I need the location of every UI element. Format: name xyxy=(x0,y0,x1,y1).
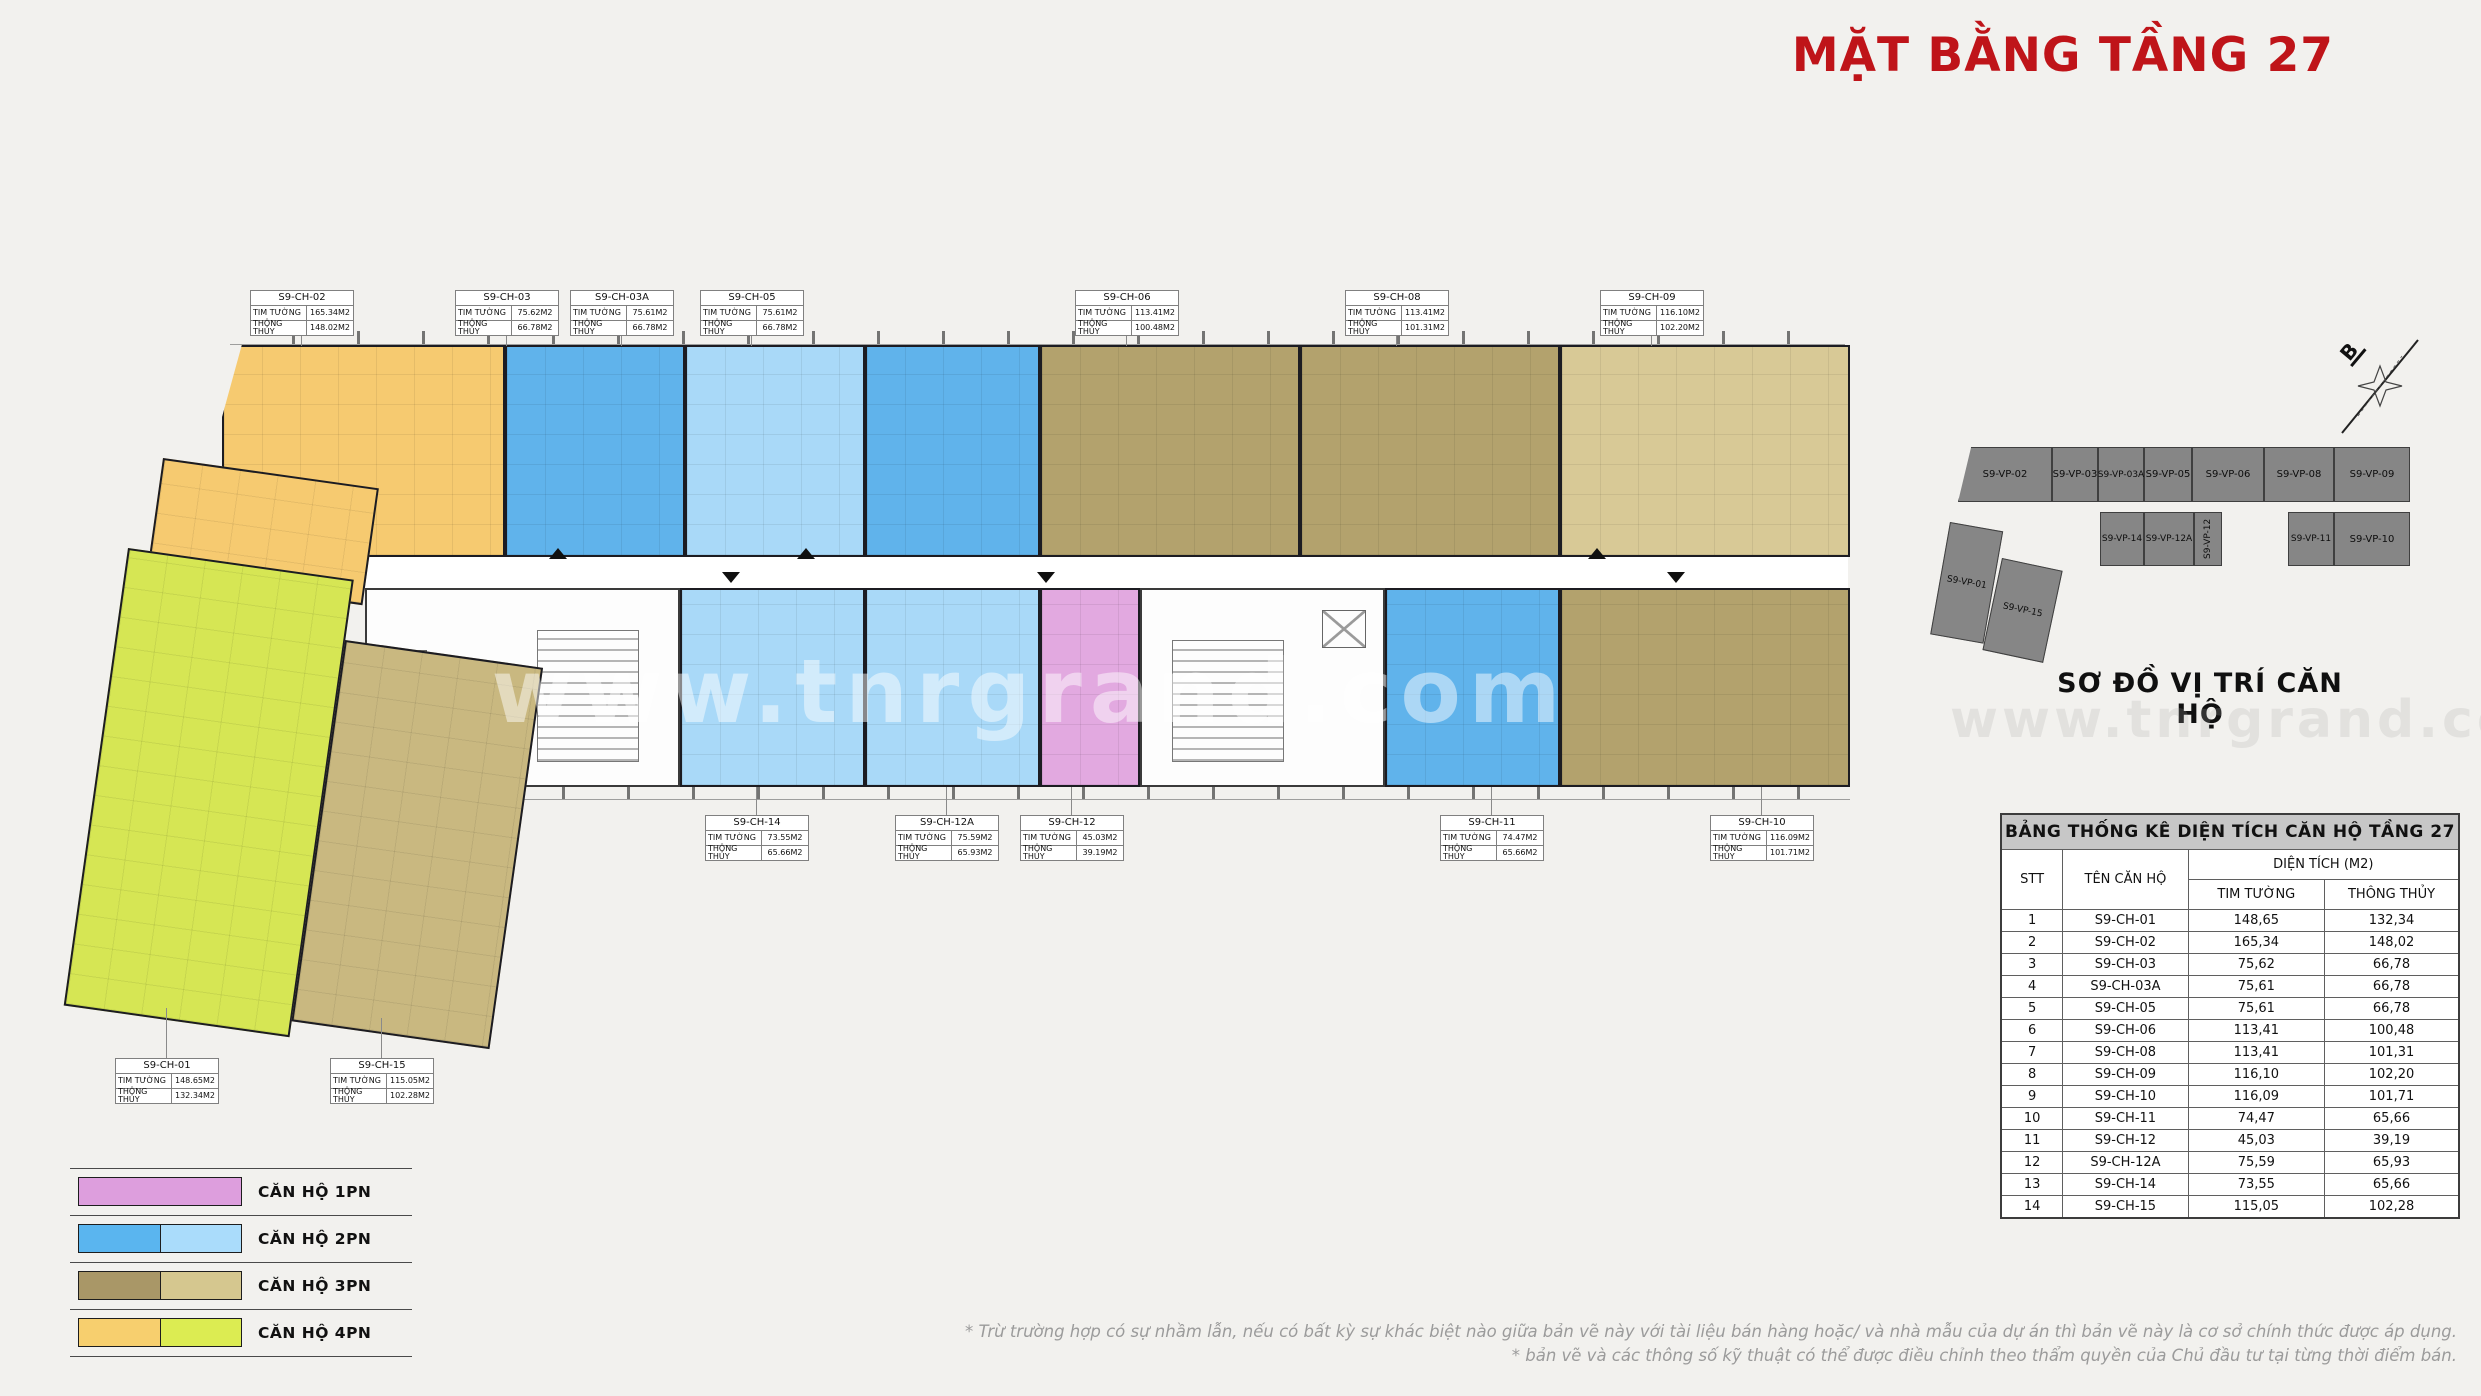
table-row: 5S9-CH-0575,6166,78 xyxy=(2001,998,2459,1020)
legend-label: CĂN HỘ 3PN xyxy=(258,1263,371,1309)
unit-s9-ch-09 xyxy=(1560,345,1850,557)
unit-label-s9-ch-06: S9-CH-06 TIM TƯỜNG113.41M2 THÔNG THỦY100… xyxy=(1075,290,1179,336)
unit-label-s9-ch-03a: S9-CH-03A TIM TƯỜNG75.61M2 THÔNG THỦY66.… xyxy=(570,290,674,336)
label-leader xyxy=(1396,336,1397,346)
unit-label-s9-ch-08: S9-CH-08 TIM TƯỜNG113.41M2 THÔNG THỦY101… xyxy=(1345,290,1449,336)
legend-item-1pn: CĂN HỘ 1PN xyxy=(70,1168,412,1215)
minimap-unit-s9-vp-11: S9-VP-11 xyxy=(2288,512,2334,566)
table-row: 4S9-CH-03A75,6166,78 xyxy=(2001,976,2459,998)
legend-swatch-3pn xyxy=(78,1271,242,1300)
entrance-arrow xyxy=(549,548,567,559)
elevator-shaft xyxy=(1322,610,1366,648)
table-row: 12S9-CH-12A75,5965,93 xyxy=(2001,1152,2459,1174)
footnotes: * Trừ trường hợp có sự nhầm lẫn, nếu có … xyxy=(965,1320,2457,1368)
unit-label-s9-ch-11: S9-CH-11 TIM TƯỜNG74.47M2 THÔNG THỦY65.6… xyxy=(1440,815,1544,861)
unit-label-s9-ch-12: S9-CH-12 TIM TƯỜNG45.03M2 THÔNG THỦY39.1… xyxy=(1020,815,1124,861)
label-leader xyxy=(946,787,947,815)
legend-label: CĂN HỘ 4PN xyxy=(258,1310,371,1356)
unit-s9-ch-11 xyxy=(1385,588,1560,787)
col-header-dien-tich: DIỆN TÍCH (M2) xyxy=(2188,850,2459,880)
unit-label-s9-ch-15: S9-CH-15 TIM TƯỜNG115.05M2 THÔNG THỦY102… xyxy=(330,1058,434,1104)
unit-s9-ch-12 xyxy=(1040,588,1140,787)
legend-item-2pn: CĂN HỘ 2PN xyxy=(70,1215,412,1262)
minimap-unit-s9-vp-03a: S9-VP-03A xyxy=(2098,447,2144,502)
unit-label-s9-ch-09: S9-CH-09 TIM TƯỜNG116.10M2 THÔNG THỦY102… xyxy=(1600,290,1704,336)
entrance-arrow xyxy=(722,572,740,583)
legend: CĂN HỘ 1PN CĂN HỘ 2PN CĂN HỘ 3PN CĂN HỘ … xyxy=(70,1168,412,1357)
table-row: 14S9-CH-15115,05102,28 xyxy=(2001,1196,2459,1219)
legend-swatch-2pn xyxy=(78,1224,242,1253)
unit-s9-ch-06 xyxy=(1040,345,1300,557)
unit-s9-ch-12a xyxy=(865,588,1040,787)
unit-s9-ch-03a xyxy=(685,345,865,557)
unit-label-s9-ch-12a: S9-CH-12A TIM TƯỜNG75.59M2 THÔNG THỦY65.… xyxy=(895,815,999,861)
label-leader xyxy=(751,336,752,346)
unit-s9-ch-03 xyxy=(505,345,685,557)
table-row: 11S9-CH-1245,0339,19 xyxy=(2001,1130,2459,1152)
corridor xyxy=(224,557,1848,588)
table-row: 10S9-CH-1174,4765,66 xyxy=(2001,1108,2459,1130)
label-leader xyxy=(621,336,622,346)
col-header-stt: STT xyxy=(2001,850,2063,910)
footnote-line: * Trừ trường hợp có sự nhầm lẫn, nếu có … xyxy=(965,1320,2457,1344)
unit-label-s9-ch-01: S9-CH-01 TIM TƯỜNG148.65M2 THÔNG THỦY132… xyxy=(115,1058,219,1104)
label-leader xyxy=(506,336,507,346)
label-leader xyxy=(1071,787,1072,815)
unit-label-s9-ch-02: S9-CH-02 TIM TƯỜNG165.34M2 THÔNG THỦY148… xyxy=(250,290,354,336)
col-header-tim-tuong: TIM TƯỜNG xyxy=(2188,880,2324,910)
unit-label-s9-ch-10: S9-CH-10 TIM TƯỜNG116.09M2 THÔNG THỦY101… xyxy=(1710,815,1814,861)
minimap-caption: SƠ ĐỒ VỊ TRÍ CĂN HỘ xyxy=(2040,668,2360,730)
entrance-arrow xyxy=(797,548,815,559)
table-row: 8S9-CH-09116,10102,20 xyxy=(2001,1064,2459,1086)
legend-item-3pn: CĂN HỘ 3PN xyxy=(70,1262,412,1309)
minimap-unit-s9-vp-05: S9-VP-05 xyxy=(2144,447,2192,502)
unit-s9-ch-10 xyxy=(1560,588,1850,787)
unit-label-s9-ch-03: S9-CH-03 TIM TƯỜNG75.62M2 THÔNG THỦY66.7… xyxy=(455,290,559,336)
minimap-unit-s9-vp-10: S9-VP-10 xyxy=(2334,512,2410,566)
building-core-2 xyxy=(1140,588,1385,787)
legend-label: CĂN HỘ 2PN xyxy=(258,1216,371,1262)
table-row: 6S9-CH-06113,41100,48 xyxy=(2001,1020,2459,1042)
label-leader xyxy=(1491,787,1492,815)
label-leader xyxy=(1651,336,1652,346)
unit-s9-ch-14 xyxy=(680,588,865,787)
minimap-unit-s9-vp-06: S9-VP-06 xyxy=(2192,447,2264,502)
table-row: 3S9-CH-0375,6266,78 xyxy=(2001,954,2459,976)
col-header-thong-thuy: THÔNG THỦY xyxy=(2325,880,2459,910)
label-leader xyxy=(301,336,302,346)
entrance-arrow xyxy=(1588,548,1606,559)
minimap-unit-s9-vp-08: S9-VP-08 xyxy=(2264,447,2334,502)
table-row: 7S9-CH-08113,41101,31 xyxy=(2001,1042,2459,1064)
floorplan-page: MẶT BẰNG TẦNG 27 www.tnrgrand.com www.tn… xyxy=(0,0,2481,1396)
staircase xyxy=(537,630,639,762)
table-row: 13S9-CH-1473,5565,66 xyxy=(2001,1174,2459,1196)
minimap-unit-s9-vp-14: S9-VP-14 xyxy=(2100,512,2144,566)
balcony-strip-bottom xyxy=(370,786,1850,800)
unit-label-s9-ch-14: S9-CH-14 TIM TƯỜNG73.55M2 THÔNG THỦY65.6… xyxy=(705,815,809,861)
label-leader xyxy=(381,1018,382,1058)
unit-label-s9-ch-05: S9-CH-05 TIM TƯỜNG75.61M2 THÔNG THỦY66.7… xyxy=(700,290,804,336)
table-row: 9S9-CH-10116,09101,71 xyxy=(2001,1086,2459,1108)
label-leader xyxy=(1761,787,1762,815)
page-title: MẶT BẰNG TẦNG 27 xyxy=(1792,28,2334,83)
area-statistics-table: BẢNG THỐNG KÊ DIỆN TÍCH CĂN HỘ TẦNG 27 S… xyxy=(2000,813,2460,1219)
entrance-arrow xyxy=(1667,572,1685,583)
minimap-unit-s9-vp-09: S9-VP-09 xyxy=(2334,447,2410,502)
staircase xyxy=(1172,640,1284,762)
unit-s9-ch-05 xyxy=(865,345,1040,557)
legend-swatch-1pn xyxy=(78,1177,242,1206)
minimap-unit-s9-vp-12: S9-VP-12 xyxy=(2194,512,2222,566)
table-title: BẢNG THỐNG KÊ DIỆN TÍCH CĂN HỘ TẦNG 27 xyxy=(2001,814,2459,850)
minimap-unit-s9-vp-03: S9-VP-03 xyxy=(2052,447,2098,502)
minimap-unit-s9-vp-02: S9-VP-02 xyxy=(1958,447,2052,502)
legend-label: CĂN HỘ 1PN xyxy=(258,1169,371,1215)
footnote-line: * bản vẽ và các thông số kỹ thuật có thể… xyxy=(965,1344,2457,1368)
entrance-arrow xyxy=(1037,572,1055,583)
legend-swatch-4pn xyxy=(78,1318,242,1347)
minimap-unit-s9-vp-12a: S9-VP-12A xyxy=(2144,512,2194,566)
unit-s9-ch-08 xyxy=(1300,345,1560,557)
label-leader xyxy=(1126,336,1127,346)
label-leader xyxy=(756,787,757,815)
legend-item-4pn: CĂN HỘ 4PN xyxy=(70,1309,412,1357)
label-leader xyxy=(166,1008,167,1058)
svg-text:B: B xyxy=(2335,338,2363,365)
north-compass-icon: B xyxy=(2330,328,2430,443)
table-row: 1S9-CH-01148,65132,34 xyxy=(2001,910,2459,932)
table-row: 2S9-CH-02165,34148,02 xyxy=(2001,932,2459,954)
col-header-ten-can-ho: TÊN CĂN HỘ xyxy=(2063,850,2188,910)
